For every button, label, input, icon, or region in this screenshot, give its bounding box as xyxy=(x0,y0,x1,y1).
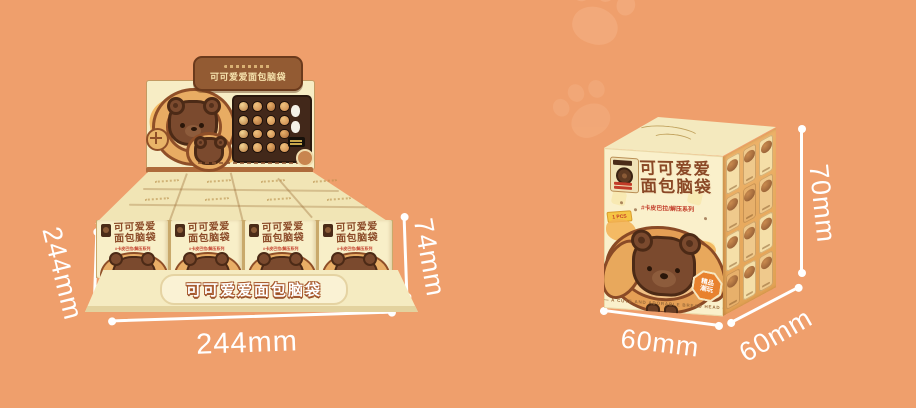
product-dimension-photo: 可可爱爱面包脑袋 可可爱爱面包脑袋 xyxy=(0,0,916,408)
panel-info-box xyxy=(288,137,305,147)
secret-item-silhouette xyxy=(291,105,300,117)
side-lineup-thumbnails xyxy=(726,134,773,311)
tray-front-banner: 可可爱爱面包脑袋 xyxy=(160,274,348,305)
brand-logo-icon xyxy=(175,224,185,237)
dimension-label-box-height: 70mm xyxy=(800,142,843,265)
lineup-thumbnails xyxy=(238,101,290,153)
tray-banner-text: 可可爱爱面包脑袋 xyxy=(186,279,322,300)
blind-box-front: 可可爱爱面包脑袋 #卡皮巴拉/解压系列 xyxy=(319,220,392,278)
banner-tagline-decoration xyxy=(224,65,272,68)
single-box-front-face: 可可爱爱 面包脑袋 #卡皮巴拉/解压系列 1 PCS 精品 潮玩 xyxy=(604,148,723,316)
single-box-subtitle: #卡皮巴拉/解压系列 xyxy=(641,203,694,214)
backer-note-text-decoration xyxy=(198,162,302,164)
round-sticker-icon xyxy=(296,149,314,167)
dimension-label-display-depth: 244mm xyxy=(32,212,91,336)
box-rows-top xyxy=(85,172,420,224)
single-box-side-face xyxy=(723,128,776,316)
dimension-line-display-width xyxy=(112,311,392,323)
brand-logo-icon xyxy=(249,224,259,237)
cookie-badge-icon xyxy=(146,128,169,151)
header-banner-text: 可可爱爱面包脑袋 xyxy=(210,70,286,83)
blind-box-front: 可可爱爱面包脑袋 #卡皮巴拉/解压系列 xyxy=(171,220,242,278)
brand-logo-icon xyxy=(323,224,333,237)
capybara-illustration-small xyxy=(194,137,224,165)
box-title: 可可爱爱面包脑袋 xyxy=(262,222,305,245)
blind-box-front: 可可爱爱面包脑袋 #卡皮巴拉/解压系列 xyxy=(245,220,316,278)
box-title: 可可爱爱面包脑袋 xyxy=(188,222,231,245)
secret-item-silhouette xyxy=(291,121,300,133)
brand-logo xyxy=(610,156,639,193)
front-row-boxes: 可可爱爱面包脑袋 #卡皮巴拉/解压系列 可可爱爱面包脑袋 #卡皮巴拉/解压系列 … xyxy=(96,220,393,278)
brand-logo-icon xyxy=(101,224,111,237)
box-title: 可可爱爱面包脑袋 xyxy=(336,222,379,245)
dimension-label-display-width: 244mm xyxy=(186,325,307,362)
box-title: 可可爱爱面包脑袋 xyxy=(114,222,157,245)
single-box-title: 可可爱爱 面包脑袋 xyxy=(639,159,713,197)
blind-box-front: 可可爱爱面包脑袋 #卡皮巴拉/解压系列 xyxy=(97,220,168,278)
dimension-label-box-width: 60mm xyxy=(599,321,722,366)
header-banner: 可可爱爱面包脑袋 xyxy=(193,56,303,91)
